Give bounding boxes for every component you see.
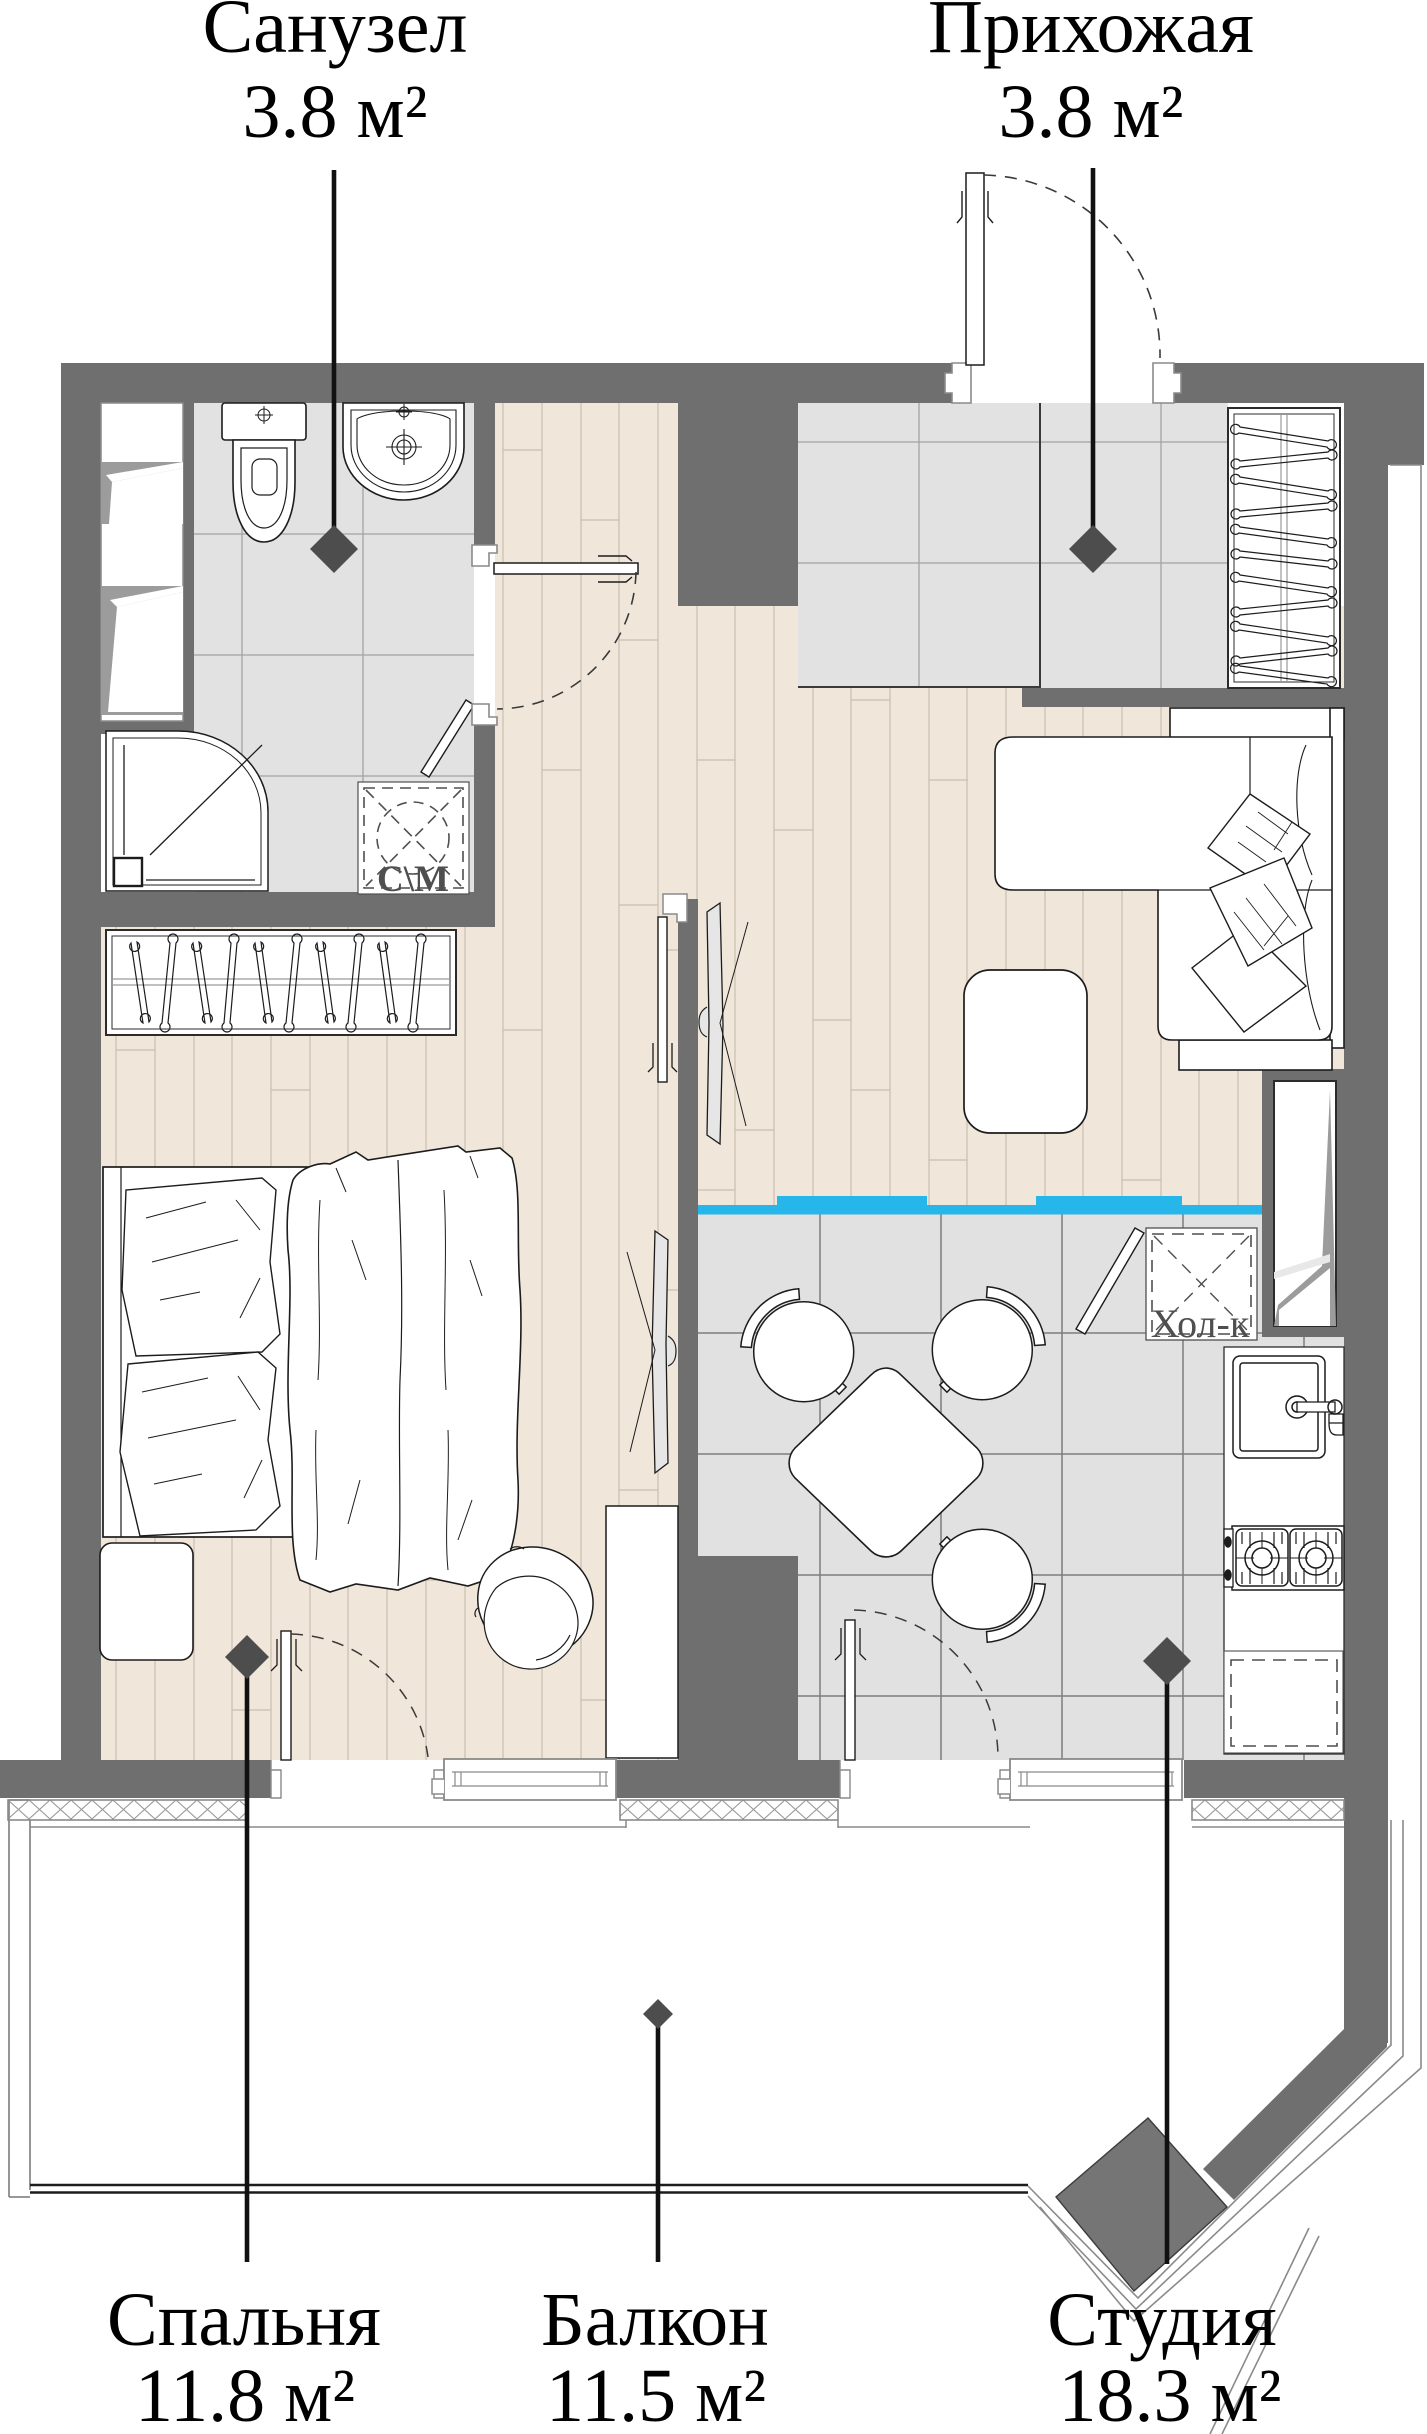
svg-text:Спальня: Спальня <box>107 2278 381 2362</box>
svg-text:3.8 м²: 3.8 м² <box>999 70 1184 154</box>
svg-text:Прихожая: Прихожая <box>928 0 1254 69</box>
svg-text:С\М: С\М <box>377 859 449 900</box>
svg-text:11.8 м²: 11.8 м² <box>135 2354 355 2434</box>
svg-text:11.5 м²: 11.5 м² <box>546 2354 766 2434</box>
svg-text:18.3 м²: 18.3 м² <box>1059 2354 1282 2434</box>
svg-text:3.8 м²: 3.8 м² <box>243 70 428 154</box>
svg-text:Хол-к: Хол-к <box>1151 1301 1250 1346</box>
svg-text:Санузел: Санузел <box>203 0 468 69</box>
svg-text:Студия: Студия <box>1047 2278 1276 2362</box>
svg-text:Балкон: Балкон <box>541 2278 769 2362</box>
